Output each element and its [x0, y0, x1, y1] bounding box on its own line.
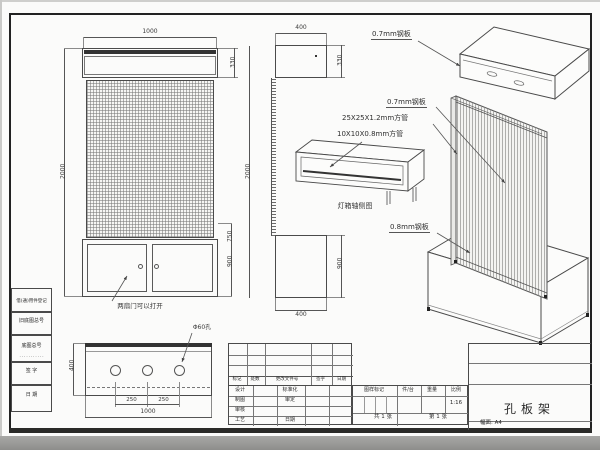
- ext-line: [83, 37, 84, 48]
- titleblock-sheet-count: 共 1 张: [358, 415, 408, 421]
- titleblock-row-design: 设计: [228, 388, 252, 393]
- margin-box-date: [11, 385, 52, 412]
- titleblock-row-approve: 审定: [276, 398, 304, 403]
- margin-label-reuse: 借(通)用件登记: [12, 300, 51, 305]
- titleblock-spec-scale: 比例: [444, 388, 468, 393]
- dim-line-front-width: [83, 37, 217, 38]
- dim-front-height-right: 2000: [246, 157, 253, 185]
- dim-side-lightbox-height: 330: [338, 47, 345, 73]
- ext-line: [326, 33, 327, 45]
- ext-line: [327, 77, 345, 78]
- ext-line: [216, 37, 217, 48]
- front-lightbox-inner: [84, 56, 216, 75]
- margin-label-master-no: 底图总号: [12, 344, 51, 349]
- titleblock-format-note: 幅面: A4: [480, 421, 540, 427]
- margin-micro-text: ···········: [13, 355, 51, 359]
- side-cabinet: [275, 235, 327, 298]
- dim-front-cabinet: 900: [228, 248, 235, 274]
- titleblock-rev-h2: 处数: [246, 378, 264, 383]
- dim-front-width: 1000: [130, 29, 170, 36]
- margin-label-signature: 签 字: [12, 369, 51, 374]
- dim-front-height-left: 2000: [61, 157, 68, 185]
- plan-top-band: [85, 343, 212, 347]
- annotation-tube-25: 25X25X1.2mm方管: [341, 115, 409, 123]
- titleblock-row-date: 日期: [276, 418, 304, 423]
- ext-line: [327, 235, 345, 236]
- dim-line-plan-spacing: [115, 404, 179, 405]
- photo-edge-top: [0, 0, 600, 2]
- titleblock-row-process: 工艺: [228, 418, 252, 423]
- titleblock-name-block: [468, 343, 591, 430]
- drawing-sheet: 借(通)用件登记 旧底图总号 底图总号 ··········· 签 字 日 期 …: [0, 0, 600, 450]
- dim-plan-spacing-1: 250: [119, 397, 144, 403]
- titleblock-row-standard: 标准化: [276, 388, 304, 393]
- front-door-handle-left: [138, 264, 143, 269]
- ext-line: [275, 33, 276, 45]
- dim-front-upper: 750: [228, 223, 235, 249]
- plan-hole-2: [142, 365, 153, 376]
- dim-plan-width: 1000: [128, 409, 168, 416]
- dim-side-top-depth: 400: [281, 25, 321, 32]
- ext-line: [179, 382, 180, 407]
- titleblock-rev-h3: 更改文件号: [264, 378, 310, 383]
- ext-line: [275, 298, 276, 310]
- dim-line-plan-width: [85, 417, 212, 418]
- annotation-tube-10: 10X10X0.8mm方管: [336, 131, 404, 139]
- ext-line: [64, 296, 82, 297]
- annotation-steel-cabinet: 0.8mm钢板: [389, 224, 430, 233]
- ext-line: [218, 296, 232, 297]
- titleblock-row-draft: 制图: [228, 398, 252, 403]
- ext-line: [73, 395, 85, 396]
- titleblock-rev-h1: 标记: [228, 378, 246, 383]
- side-lightbox: [275, 45, 327, 78]
- titleblock-scale-value: 1:16: [444, 401, 468, 407]
- annotation-steel-top: 0.7mm钢板: [371, 31, 412, 40]
- plan-dashed-line: [87, 387, 210, 388]
- dim-front-lightbox-height: 330: [231, 49, 238, 75]
- plan-hole-3: [174, 365, 185, 376]
- dim-plan-spacing-2: 250: [151, 397, 176, 403]
- dim-side-bottom-depth: 400: [281, 312, 321, 319]
- ext-line: [73, 343, 85, 344]
- ext-line: [327, 297, 345, 298]
- margin-label-date: 日 期: [12, 393, 51, 398]
- annotation-steel-panel: 0.7mm钢板: [386, 99, 427, 108]
- front-door-right: [152, 244, 213, 292]
- photo-edge-left: [0, 0, 2, 450]
- ext-line: [327, 45, 345, 46]
- dim-side-cabinet-height: 900: [338, 250, 345, 276]
- titleblock-sheet-no: 第 1 张: [410, 415, 466, 421]
- titleblock-part-name: 孔板架: [468, 403, 591, 415]
- dim-plan-depth: 400: [70, 352, 77, 378]
- detail-caption: 灯箱轴侧图: [328, 203, 382, 211]
- front-lightbox-band: [84, 50, 216, 54]
- titleblock-rev-h4: 签字: [310, 378, 331, 383]
- front-door-note: 两扇门可以打开: [100, 303, 180, 310]
- side-lightbox-dot: [315, 55, 317, 57]
- plan-hole-1: [110, 365, 121, 376]
- ext-line: [218, 77, 238, 78]
- front-perforated-panel: [86, 80, 214, 238]
- titleblock-rev-h5: 日期: [331, 378, 352, 383]
- titleblock-spec-qty: 件/台: [396, 388, 420, 393]
- titleblock-row-check: 审核: [228, 408, 252, 413]
- margin-label-old-master: 旧底图总号: [12, 319, 51, 324]
- ext-line: [64, 48, 82, 49]
- photo-bottom-gray: [0, 436, 600, 450]
- side-panel-edge: [271, 78, 276, 236]
- titleblock-spec-mark: 图样标记: [352, 388, 396, 393]
- ext-line: [85, 396, 86, 417]
- ext-line: [211, 396, 212, 417]
- ext-line: [326, 298, 327, 310]
- titleblock-spec-weight: 重量: [420, 388, 444, 393]
- plan-inner-line: [86, 351, 211, 352]
- dim-line-side-top: [275, 33, 327, 34]
- front-door-handle-right: [154, 264, 159, 269]
- plan-hole-label: Φ60孔: [186, 325, 218, 332]
